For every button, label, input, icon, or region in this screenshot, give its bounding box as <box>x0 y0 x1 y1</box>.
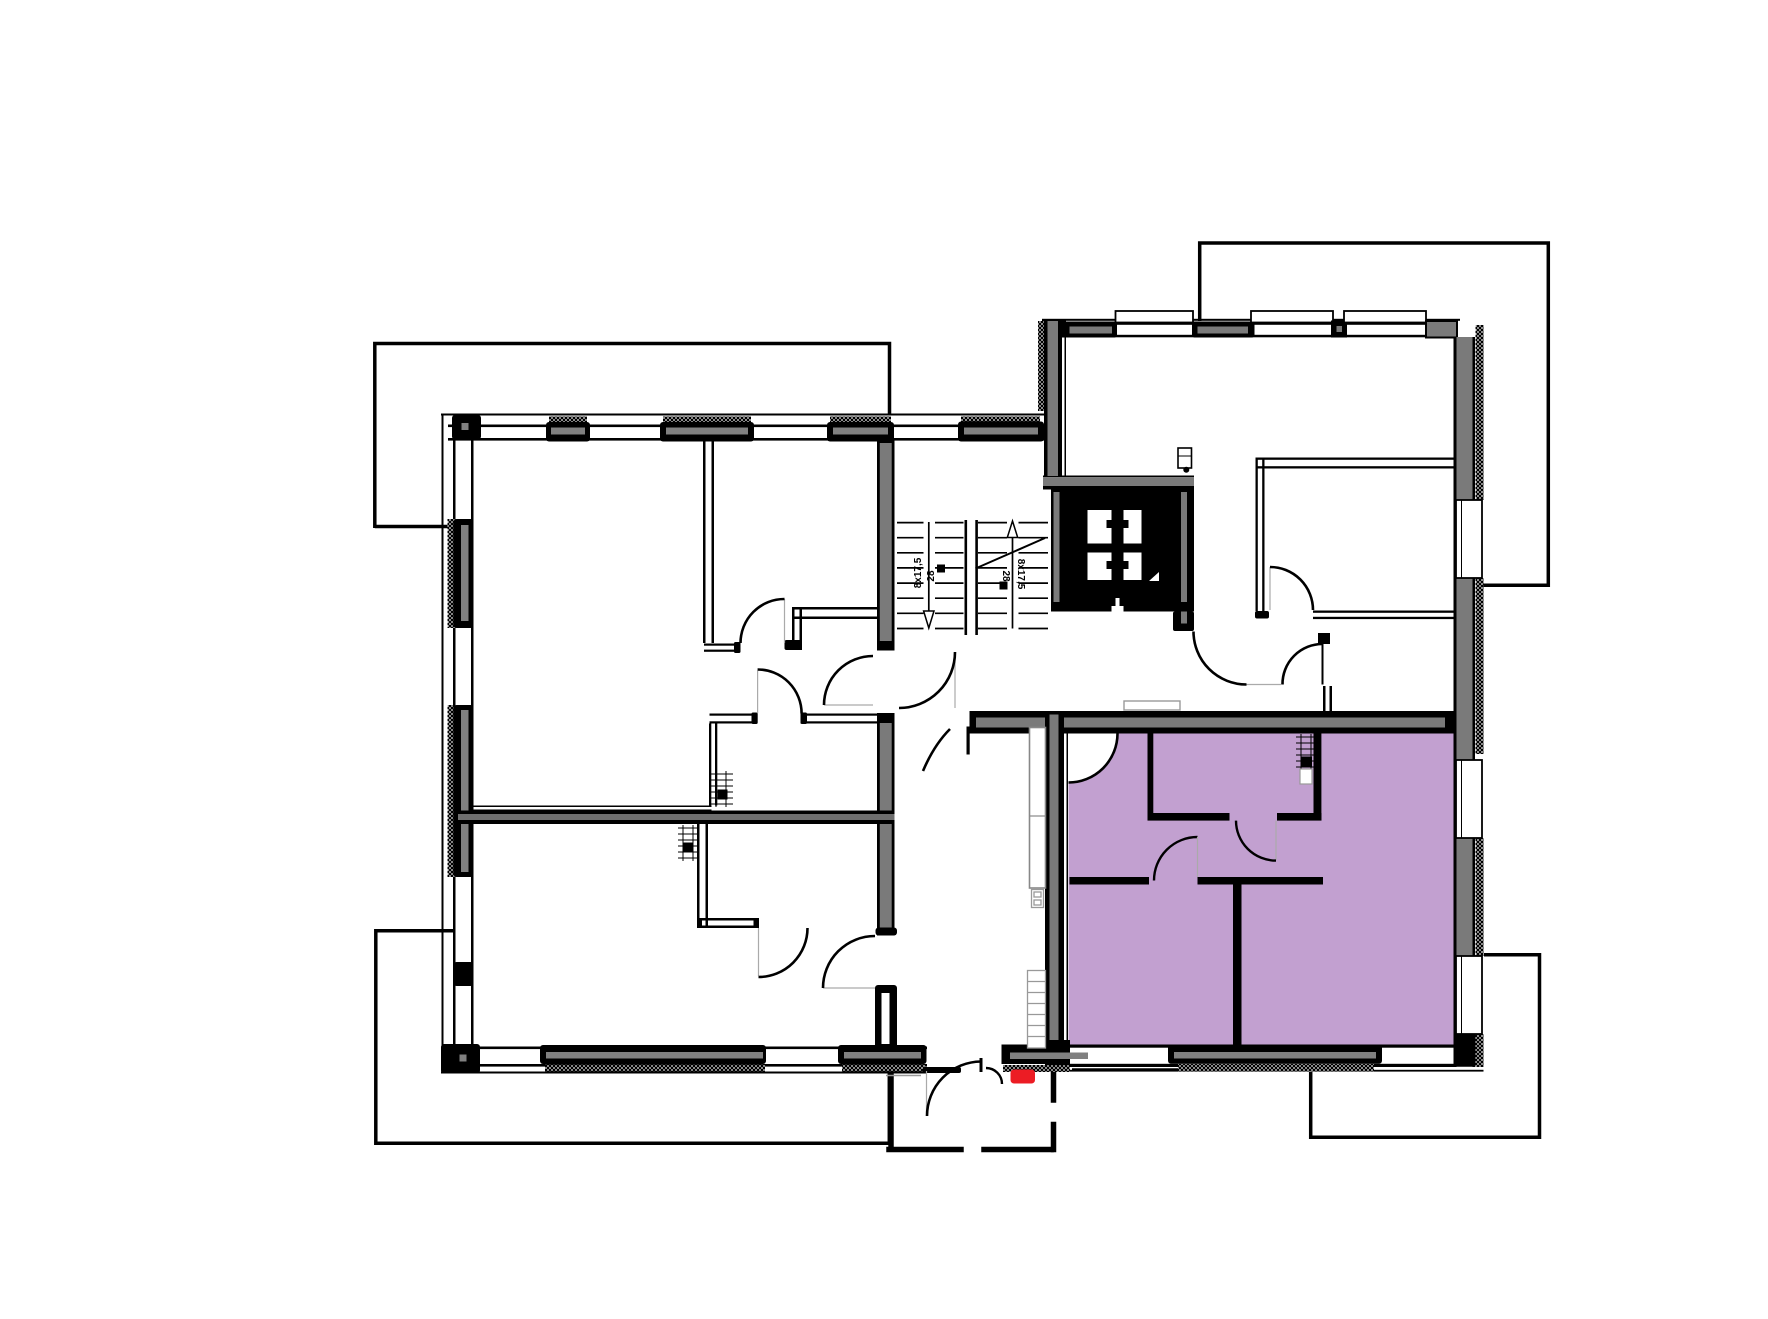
svg-text:28: 28 <box>926 570 937 582</box>
svg-text:8x17,5: 8x17,5 <box>913 557 924 588</box>
svg-text:28: 28 <box>1000 570 1011 582</box>
svg-text:8x17,5: 8x17,5 <box>1015 559 1026 590</box>
